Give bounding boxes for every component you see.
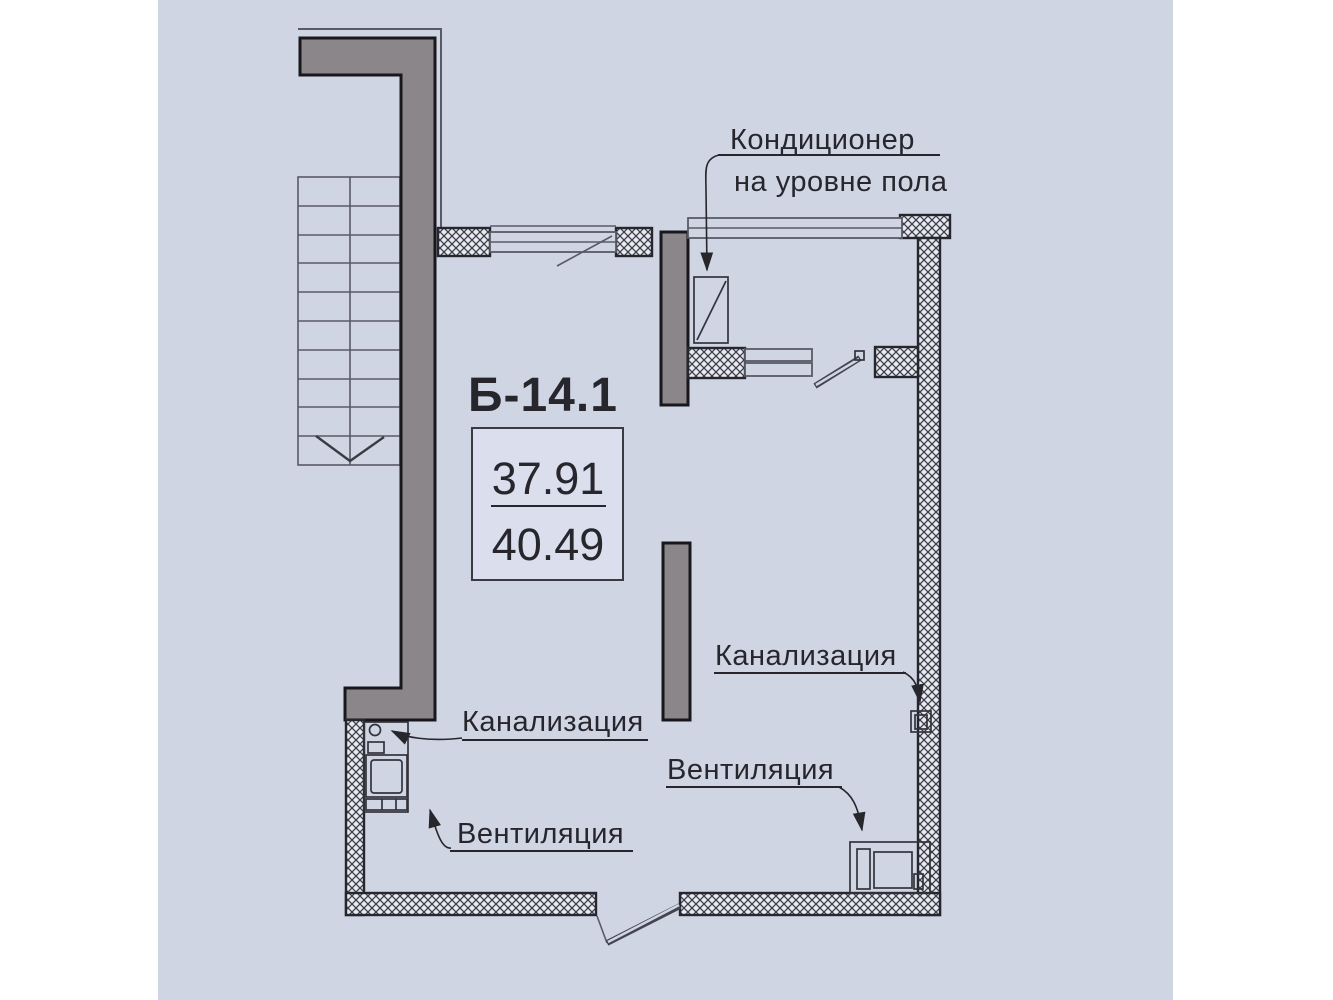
wall-top-right-corner (900, 215, 950, 238)
window-loggia-sill-upper (745, 349, 812, 361)
wall-pier-loggia-right (875, 347, 918, 377)
partition-wall-top (661, 232, 688, 405)
wall-pier-top-middle (616, 228, 652, 256)
floorplan-drawing: Кондиционер на уровне пола Канализация В… (0, 0, 1333, 1000)
unit-label: Б-14.1 (468, 369, 618, 422)
wall-pier-loggia-left (688, 348, 745, 378)
floorplan-photo: Кондиционер на уровне пола Канализация В… (0, 0, 1333, 1000)
area-box: 37.91 40.49 (472, 428, 623, 580)
label-sewer-left: Канализация (462, 706, 644, 738)
partition-wall-bottom (663, 543, 690, 720)
label-vent-right: Вентиляция (667, 754, 834, 786)
wall-right (918, 238, 940, 915)
label-vent-left: Вентиляция (457, 818, 624, 850)
wall-pier-top-left (438, 228, 490, 256)
label-sewer-right: Канализация (715, 640, 897, 672)
drawing-paper (158, 0, 1173, 1000)
label-air-conditioner-line1: Кондиционер (730, 124, 915, 156)
wall-bottom-right (680, 893, 940, 915)
living-area-value: 37.91 (492, 453, 605, 504)
window-loggia-sill-lower (745, 363, 812, 376)
wall-left (346, 720, 364, 915)
wall-bottom-left (346, 893, 596, 915)
label-air-conditioner-line2: на уровне пола (734, 166, 948, 198)
total-area-value: 40.49 (492, 519, 605, 570)
